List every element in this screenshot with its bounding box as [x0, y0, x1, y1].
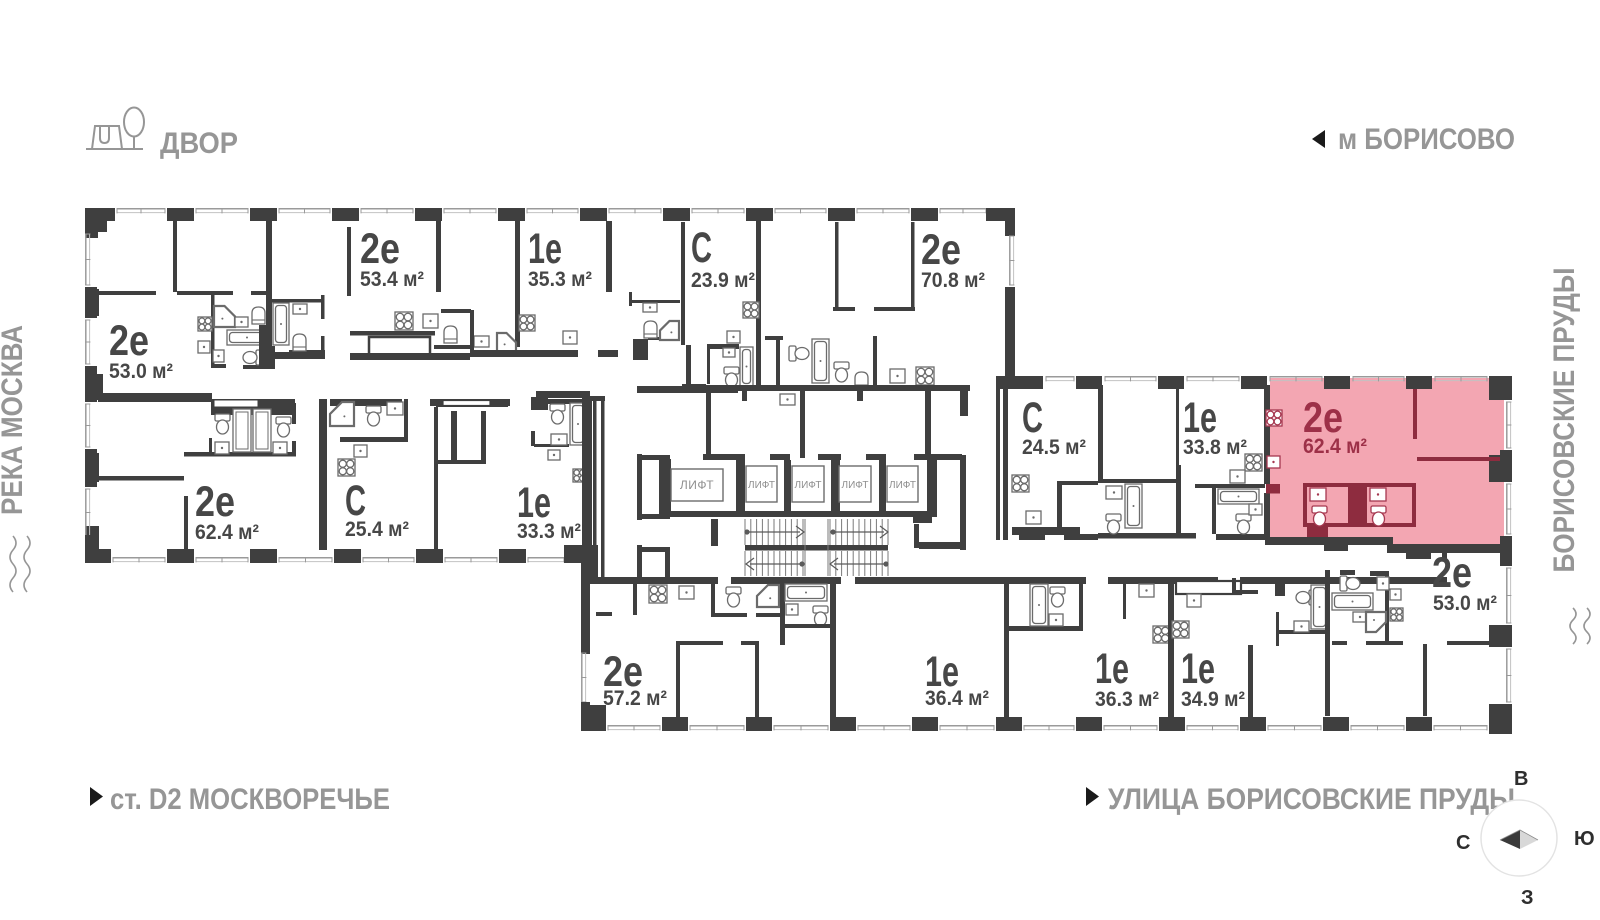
svg-text:34.9 м²: 34.9 м² — [1181, 688, 1245, 711]
svg-text:С: С — [1022, 394, 1043, 442]
svg-text:УЛИЦА БОРИСОВСКИЕ ПРУДЫ: УЛИЦА БОРИСОВСКИЕ ПРУДЫ — [1108, 783, 1515, 816]
svg-text:24.5 м²: 24.5 м² — [1022, 436, 1086, 459]
svg-text:1е: 1е — [1181, 645, 1215, 693]
svg-text:2е: 2е — [921, 226, 961, 274]
svg-text:Ю: Ю — [1574, 828, 1595, 850]
svg-text:62.4 м²: 62.4 м² — [1303, 435, 1367, 458]
svg-text:2е: 2е — [109, 317, 149, 365]
svg-text:53.0 м²: 53.0 м² — [109, 360, 173, 383]
svg-text:В: В — [1514, 768, 1528, 790]
svg-text:З: З — [1521, 887, 1534, 909]
svg-text:ЛИФТ: ЛИФТ — [795, 480, 822, 491]
svg-text:57.2 м²: 57.2 м² — [603, 687, 667, 710]
svg-text:РЕКА МОСКВА: РЕКА МОСКВА — [0, 325, 29, 515]
svg-text:62.4 м²: 62.4 м² — [195, 521, 259, 544]
svg-text:1е: 1е — [1095, 645, 1129, 693]
svg-text:ст. D2 МОСКВОРЕЧЬЕ: ст. D2 МОСКВОРЕЧЬЕ — [110, 783, 390, 816]
svg-text:С: С — [691, 224, 712, 272]
svg-text:36.3 м²: 36.3 м² — [1095, 688, 1159, 711]
svg-text:ЛИФТ: ЛИФТ — [889, 480, 916, 491]
svg-text:С: С — [1456, 832, 1470, 854]
svg-text:ЛИФТ: ЛИФТ — [748, 480, 775, 491]
svg-text:м БОРИСОВО: м БОРИСОВО — [1338, 123, 1515, 156]
svg-text:70.8 м²: 70.8 м² — [921, 269, 985, 292]
svg-text:35.3 м²: 35.3 м² — [528, 268, 592, 291]
svg-text:53.4 м²: 53.4 м² — [360, 268, 424, 291]
svg-text:2е: 2е — [1432, 549, 1472, 597]
svg-text:1е: 1е — [528, 225, 562, 273]
svg-text:ЛИФТ: ЛИФТ — [680, 478, 714, 492]
svg-text:2е: 2е — [195, 478, 235, 526]
svg-text:23.9 м²: 23.9 м² — [691, 269, 755, 292]
svg-text:ЛИФТ: ЛИФТ — [842, 480, 869, 491]
svg-text:ДВОР: ДВОР — [160, 127, 238, 160]
svg-text:33.3 м²: 33.3 м² — [517, 520, 581, 543]
svg-text:25.4 м²: 25.4 м² — [345, 518, 409, 541]
svg-text:36.4 м²: 36.4 м² — [925, 687, 989, 710]
svg-text:33.8 м²: 33.8 м² — [1183, 436, 1247, 459]
svg-text:БОРИСОВСКИЕ ПРУДЫ: БОРИСОВСКИЕ ПРУДЫ — [1548, 268, 1581, 573]
svg-text:53.0 м²: 53.0 м² — [1433, 592, 1497, 615]
svg-text:1е: 1е — [1183, 394, 1217, 442]
svg-text:2е: 2е — [360, 225, 400, 273]
